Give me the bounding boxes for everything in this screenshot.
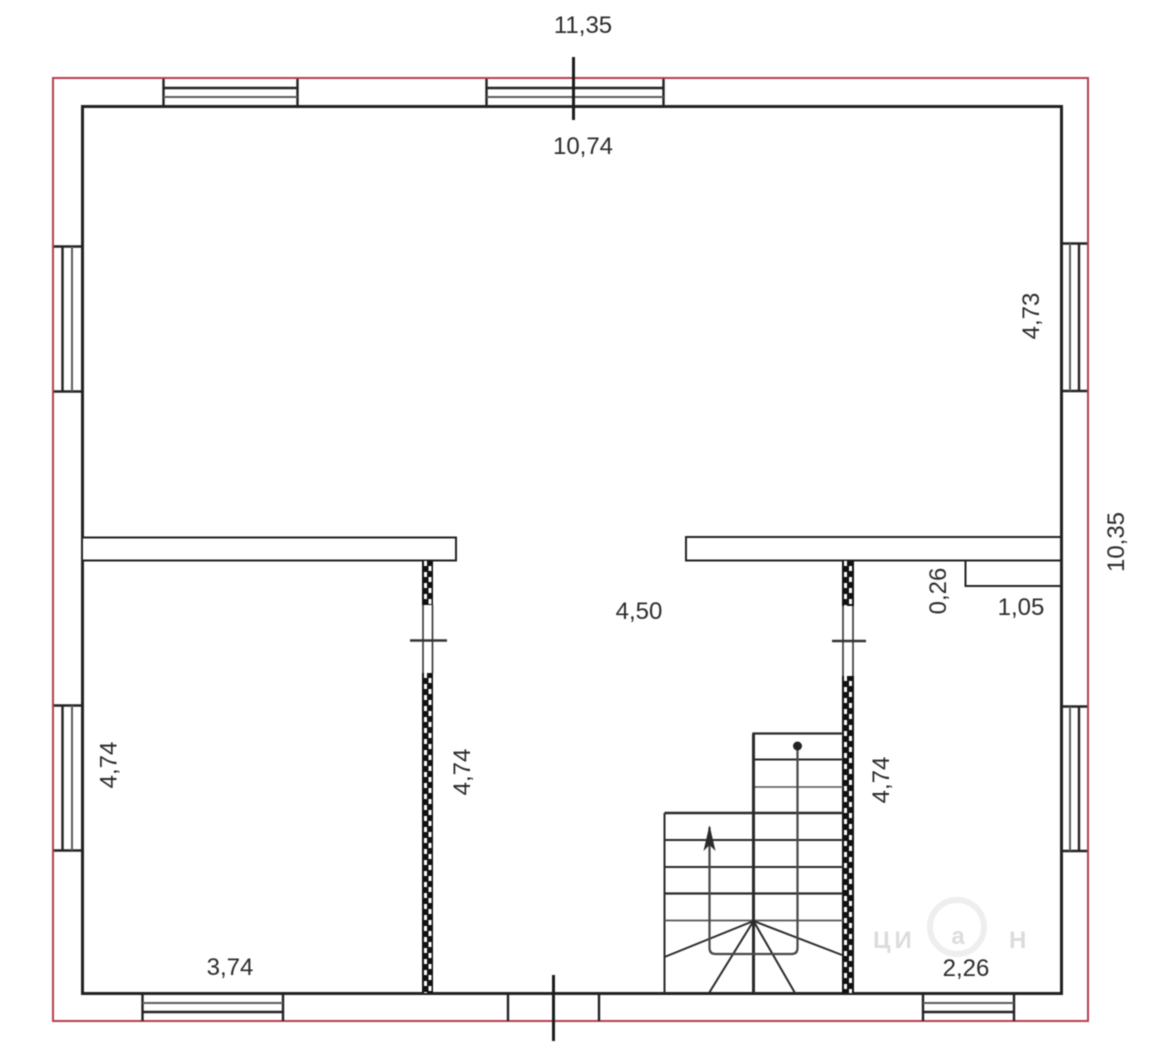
svg-text:10,74: 10,74 [553,133,613,160]
svg-text:10,35: 10,35 [1103,512,1130,572]
svg-text:4,74: 4,74 [449,749,476,796]
svg-text:2,26: 2,26 [943,955,990,982]
svg-text:3,74: 3,74 [207,954,254,981]
svg-text:Н: Н [1009,927,1026,954]
svg-text:4,74: 4,74 [96,742,123,789]
svg-text:4,73: 4,73 [1018,293,1045,340]
svg-text:0,26: 0,26 [925,568,952,615]
svg-text:4,50: 4,50 [616,598,663,625]
svg-text:11,35: 11,35 [554,12,612,39]
svg-text:ЦИ: ЦИ [873,927,916,954]
svg-text:а: а [951,923,965,950]
svg-text:1,05: 1,05 [998,594,1045,621]
svg-text:4,74: 4,74 [868,757,895,804]
